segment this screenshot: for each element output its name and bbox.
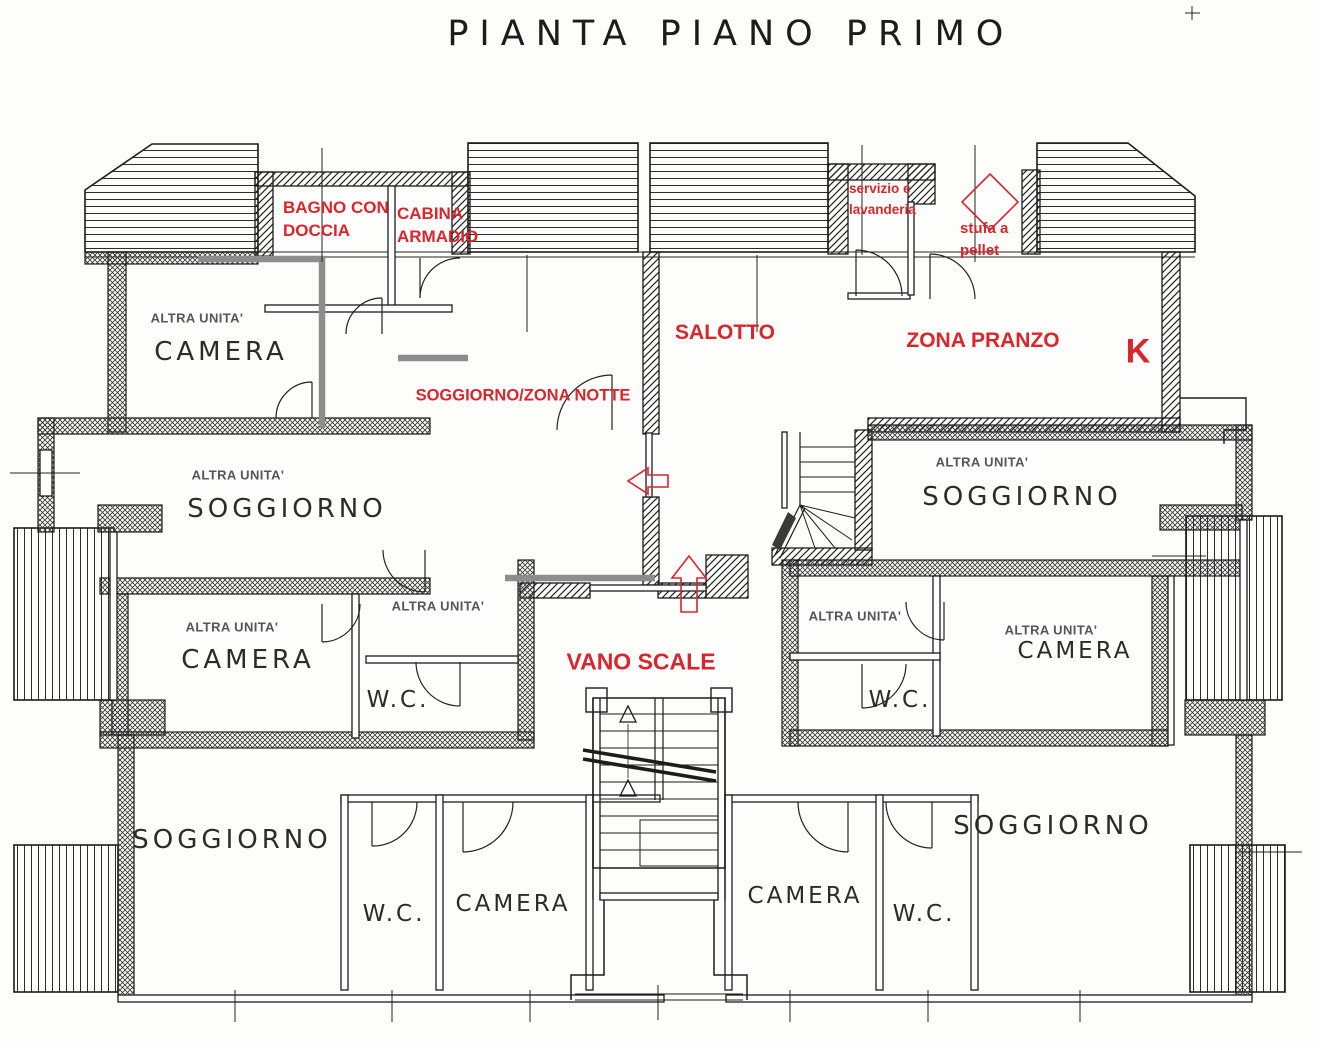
annotation-kitchen-k: K (1126, 333, 1151, 372)
unit-tag-center-room: ALTRA UNITA' (392, 599, 485, 614)
room-label-wc-mid-right: W.C. (869, 687, 932, 713)
room-label-wc-bottom-left: W.C. (363, 901, 426, 927)
annotation-stufa-a-pellet: stufa a pellet (960, 218, 1022, 262)
room-label-camera-bottom-right: CAMERA (748, 883, 863, 909)
annotation-zona-pranzo: ZONA PRANZO (906, 329, 1059, 353)
unit-tag-camera-right: ALTRA UNITA' (1005, 623, 1098, 638)
stairwell (571, 688, 747, 1000)
balcony-top-center-right (650, 143, 828, 252)
floor-plan-page: PIANTA PIANO PRIMO BAGNO CON DOCCIA CABI… (0, 0, 1320, 1042)
room-label-soggiorno-bottom-left: SOGGIORNO (132, 825, 331, 855)
annotation-salotto: SALOTTO (675, 321, 775, 345)
room-label-soggiorno-left: SOGGIORNO (187, 494, 386, 524)
unit-tag-camera-top-left: ALTRA UNITA' (151, 311, 244, 326)
annotation-vano-scale: VANO SCALE (566, 649, 715, 676)
annotation-servizio-e-lavanderia: servizio e lavanderia (849, 178, 931, 220)
annotation-cabina-armadio: CABINA ARMADIO (397, 202, 487, 248)
balcony-left (14, 528, 114, 700)
balcony-right (1186, 516, 1282, 700)
balcony-top-right (1037, 143, 1195, 252)
unit-tag-mid-right-room: ALTRA UNITA' (809, 609, 902, 624)
room-label-camera-right: CAMERA (1018, 638, 1133, 664)
room-label-camera-top-left: CAMERA (154, 337, 288, 367)
room-label-wc-mid-left: W.C. (367, 687, 430, 713)
plan-title: PIANTA PIANO PRIMO (447, 14, 1014, 54)
room-label-camera-bottom-left: CAMERA (456, 891, 571, 917)
unit-tag-soggiorno-left: ALTRA UNITA' (192, 468, 285, 483)
balcony-top-center-left (468, 143, 638, 252)
unit-tag-camera-mid-left: ALTRA UNITA' (186, 620, 279, 635)
room-label-camera-mid-left: CAMERA (181, 645, 315, 675)
balcony-top-left (85, 144, 258, 252)
unit-tag-soggiorno-right: ALTRA UNITA' (936, 455, 1029, 470)
room-label-soggiorno-bottom-right: SOGGIORNO (953, 811, 1152, 841)
room-label-wc-bottom-right: W.C. (893, 901, 956, 927)
annotation-bagno-con-doccia: BAGNO CON DOCCIA (283, 196, 398, 242)
annotation-soggiorno-zona-notte: SOGGIORNO/ZONA NOTTE (416, 387, 631, 406)
room-label-soggiorno-right: SOGGIORNO (922, 482, 1121, 512)
balcony-bottom-left (14, 845, 118, 992)
